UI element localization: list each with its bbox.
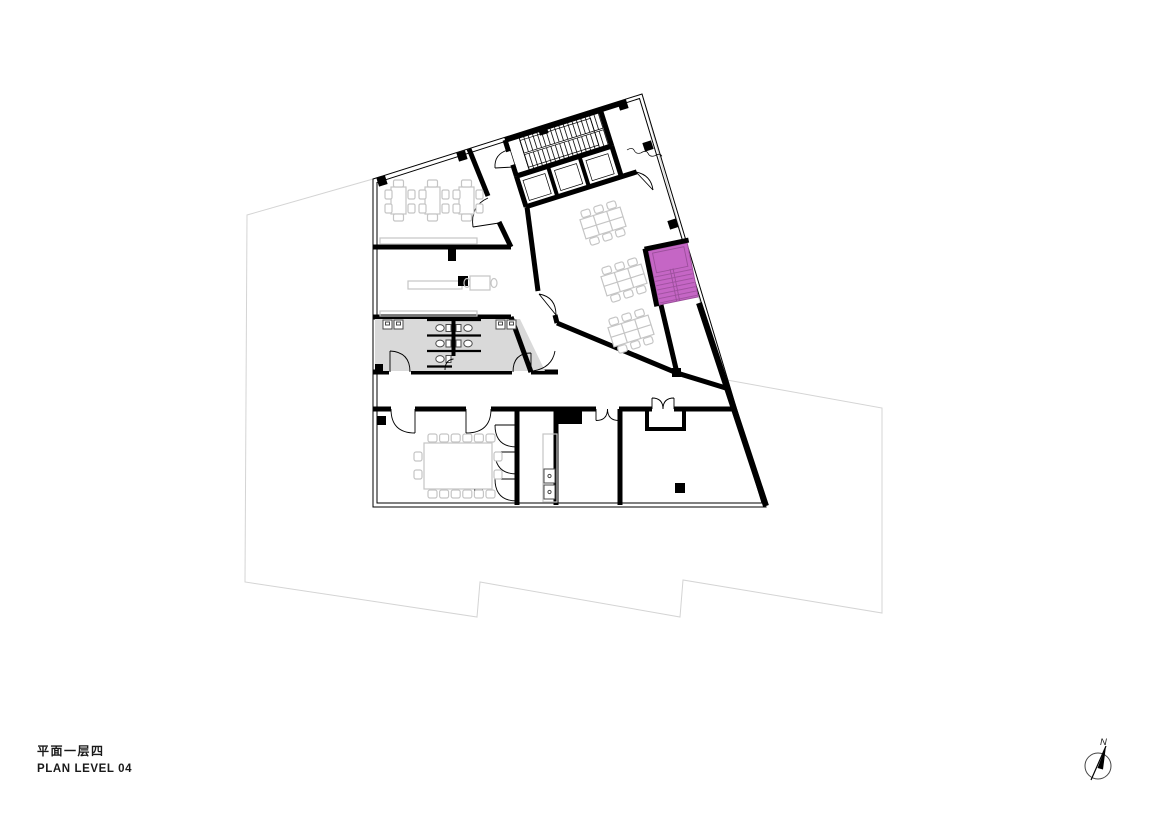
canteen-tables	[385, 180, 483, 221]
title-block: 平面一层四 PLAN LEVEL 04	[37, 744, 132, 775]
north-arrow: N	[1085, 737, 1111, 780]
workroom	[408, 276, 497, 290]
conference-room	[414, 434, 502, 498]
work-table	[470, 276, 490, 290]
closet-doors	[495, 425, 517, 501]
floor-plan-drawing: N 平面一层四 PLAN LEVEL 04	[0, 0, 1152, 816]
niche-walls	[647, 409, 684, 429]
exterior-wall-right	[699, 303, 766, 506]
work-counter	[408, 281, 462, 289]
north-label: N	[1100, 737, 1107, 748]
conference-table	[424, 443, 492, 489]
bottom-band-doors	[391, 398, 674, 433]
core-stair	[505, 103, 642, 206]
floor-plan-sheet: N 平面一层四 PLAN LEVEL 04	[0, 0, 1152, 816]
canteen-bench	[380, 238, 477, 244]
shaft-block	[558, 409, 582, 424]
washrooms	[375, 317, 555, 372]
highlighted-stair	[644, 240, 700, 307]
plan-title-zh: 平面一层四	[37, 744, 105, 758]
desk-cluster-2	[599, 257, 650, 304]
site-boundary	[245, 94, 882, 617]
office-entry-door	[636, 172, 653, 190]
plan-title-en: PLAN LEVEL 04	[37, 763, 132, 775]
desk-cluster-1	[578, 200, 629, 247]
stair-door	[495, 150, 514, 168]
open-office	[578, 200, 657, 355]
